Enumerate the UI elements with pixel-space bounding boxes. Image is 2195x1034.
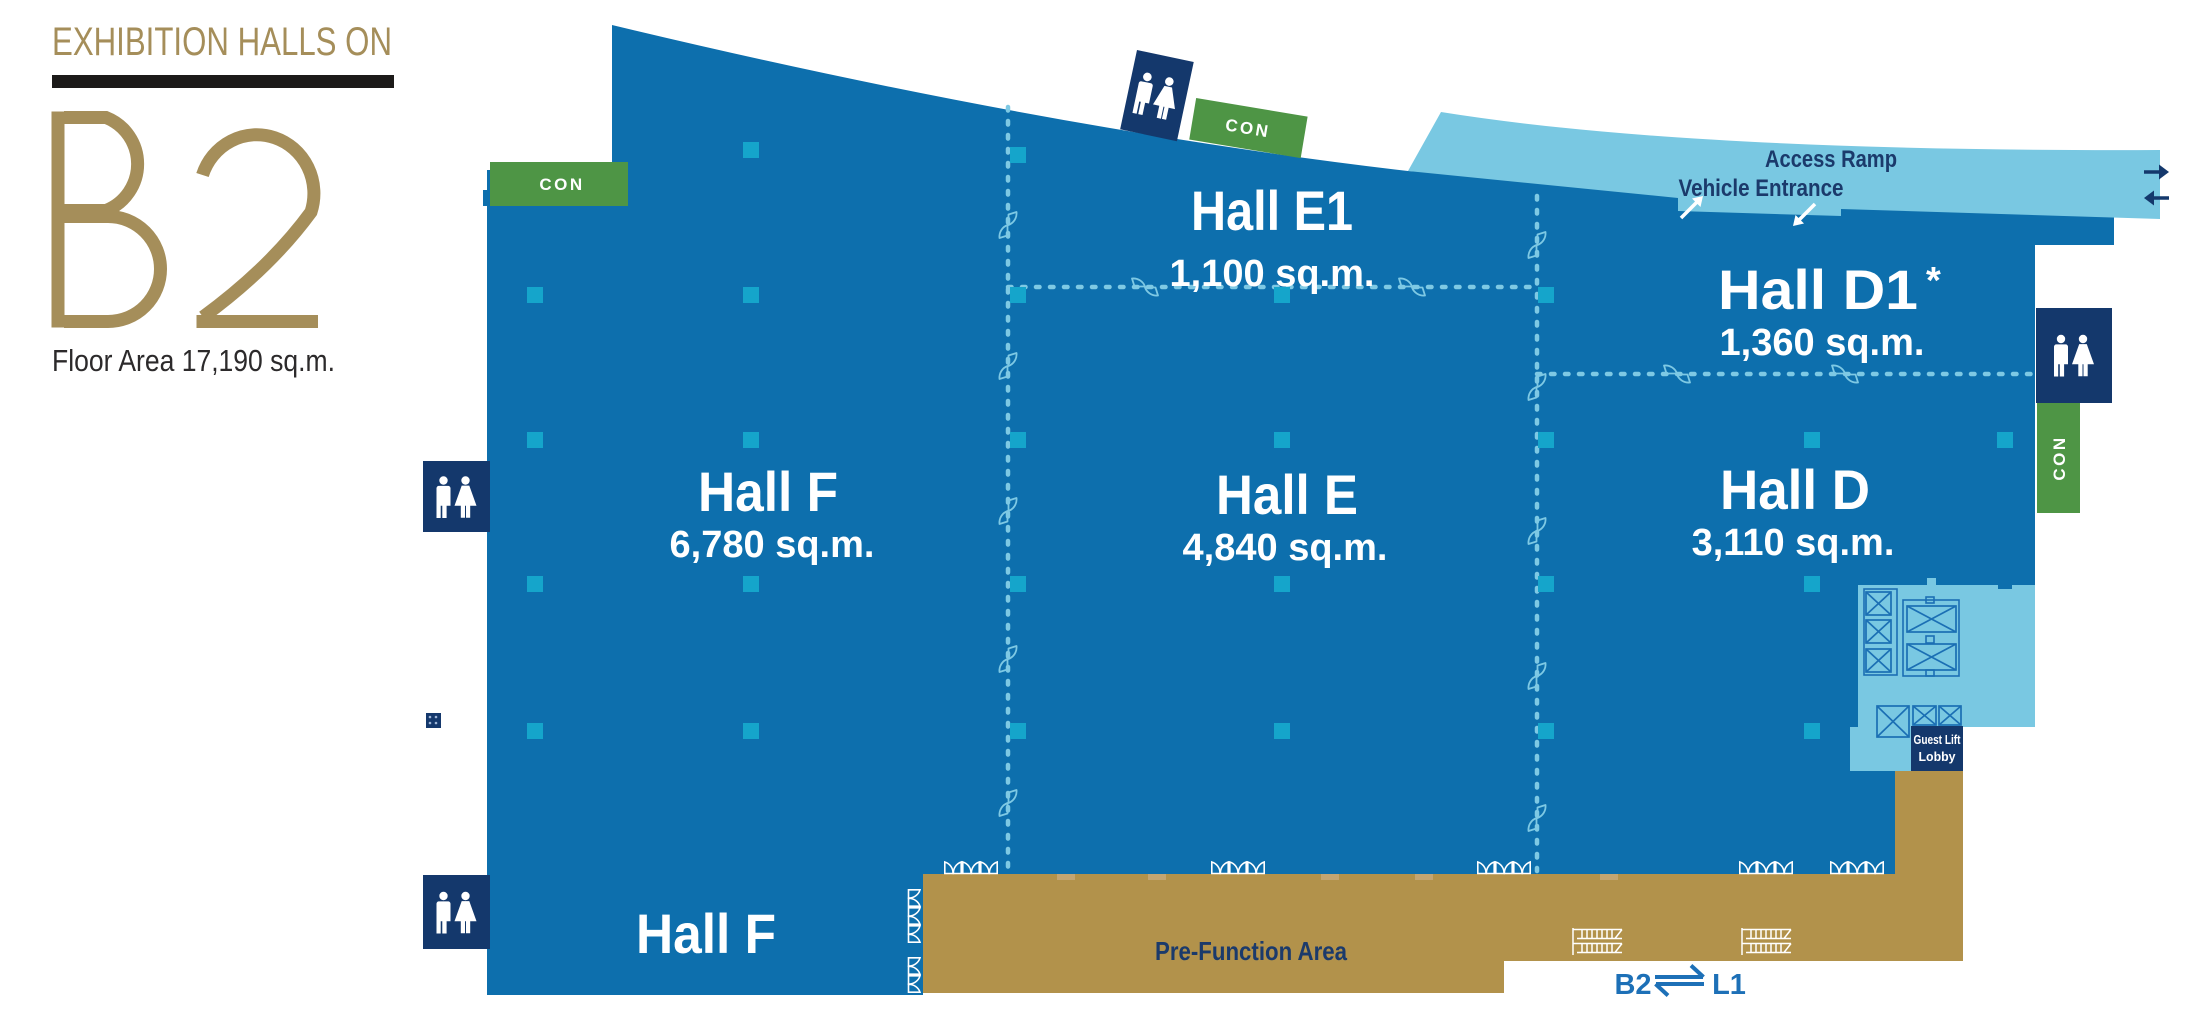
- svg-text:EXHIBITION HALLS ON: EXHIBITION HALLS ON: [52, 20, 392, 64]
- svg-text:1,360 sq.m.: 1,360 sq.m.: [1720, 322, 1925, 364]
- svg-text:6,780 sq.m.: 6,780 sq.m.: [670, 524, 875, 566]
- svg-text:Vehicle Entrance: Vehicle Entrance: [1679, 175, 1844, 202]
- svg-text:Guest Lift: Guest Lift: [1914, 732, 1962, 747]
- svg-text:Hall E: Hall E: [1216, 463, 1358, 526]
- svg-text:B2: B2: [1614, 969, 1651, 1001]
- svg-text:Hall D: Hall D: [1720, 458, 1870, 521]
- svg-text:L1: L1: [1712, 969, 1746, 1001]
- svg-text:3,110 sq.m.: 3,110 sq.m.: [1692, 522, 1895, 564]
- svg-text:*: *: [1926, 260, 1941, 302]
- svg-text:Lobby: Lobby: [1919, 749, 1957, 764]
- svg-text:Access Ramp: Access Ramp: [1765, 146, 1897, 173]
- svg-text:Hall F: Hall F: [698, 460, 838, 523]
- svg-text:1,100 sq.m.: 1,100 sq.m.: [1170, 253, 1375, 295]
- svg-text:CON: CON: [2050, 435, 2069, 480]
- svg-text:Hall F: Hall F: [636, 902, 776, 965]
- svg-text:CON: CON: [539, 175, 584, 194]
- svg-text:Hall D1: Hall D1: [1718, 258, 1918, 321]
- svg-text:Pre-Function Area: Pre-Function Area: [1155, 936, 1347, 966]
- svg-text:Floor Area 17,190 sq.m.: Floor Area 17,190 sq.m.: [52, 343, 335, 378]
- svg-text:4,840 sq.m.: 4,840 sq.m.: [1183, 527, 1388, 569]
- svg-text:Hall E1: Hall E1: [1191, 179, 1353, 242]
